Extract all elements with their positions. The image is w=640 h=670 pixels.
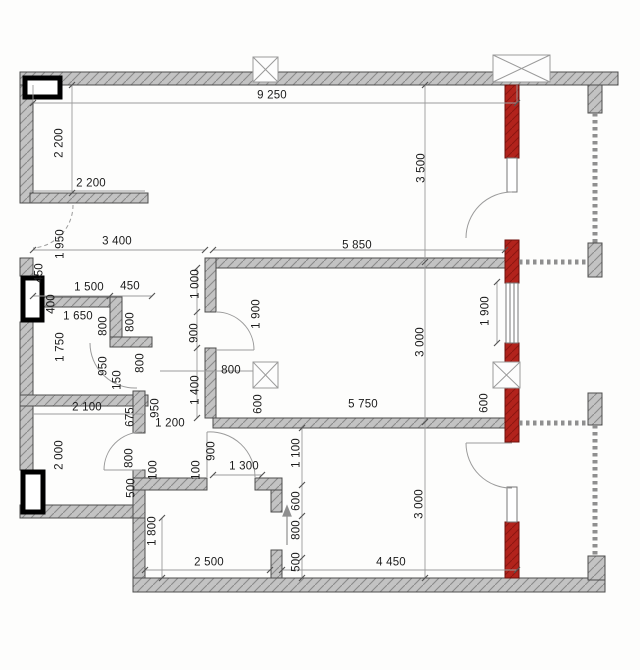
- wall-bottom: [133, 578, 605, 592]
- dim-label-3000-b: 3 000: [414, 489, 426, 519]
- column-right-mid: [588, 243, 602, 277]
- shaft-x-icon-top-right: [493, 55, 550, 82]
- door-arc-balcony-top: [466, 192, 512, 238]
- dim-label-950-a: 950: [98, 356, 110, 376]
- dim-label-800-box: 800: [221, 365, 241, 377]
- riser-wall-3: [505, 343, 519, 362]
- dim-label-800-d: 800: [124, 448, 136, 468]
- dim-label-400: 400: [46, 294, 58, 314]
- wall-br-corner: [588, 556, 605, 580]
- dim-label-1100: 1 100: [291, 438, 303, 468]
- dim-label-900-corr: 900: [206, 441, 218, 461]
- dim-label-9250: 9 250: [257, 90, 287, 102]
- door-arc-dashed-left: [33, 205, 73, 248]
- dim-label-2200-v: 2 200: [54, 128, 66, 158]
- dim-label-4450: 4 450: [376, 557, 406, 569]
- dim-label-450-v: 450: [34, 263, 46, 283]
- dim-label-5750: 5 750: [348, 399, 378, 411]
- wall-corridor-b: [255, 478, 282, 490]
- shaft-x-icon-center: [253, 362, 278, 388]
- window-icon-top-left: [25, 78, 60, 97]
- wall-left-upper: [20, 85, 33, 203]
- dim-label-500-a: 500: [126, 478, 138, 498]
- wall-left-mid-a: [20, 258, 33, 276]
- dim-label-500-b: 500: [291, 552, 303, 572]
- dim-label-2200-h: 2 200: [76, 178, 106, 190]
- dim-label-2000: 2 000: [54, 440, 66, 470]
- dim-label-100-b: 100: [191, 460, 203, 480]
- dim-label-1800: 1 800: [147, 516, 159, 546]
- dim-label-1200: 1 200: [155, 418, 185, 430]
- red-wall-openings: [506, 158, 518, 522]
- wall-room-left-a: [205, 258, 216, 312]
- dim-label-1500: 1 500: [74, 282, 104, 294]
- door-leaf-top: [507, 158, 517, 192]
- dim-label-950-b: 950: [150, 398, 162, 418]
- dim-label-3000-a: 3 000: [415, 327, 427, 357]
- dim-label-800-e: 800: [291, 520, 303, 540]
- window-icon-left-mid: [23, 278, 42, 320]
- glazing-lines: [519, 113, 595, 556]
- door-leaf-bottom: [507, 487, 517, 522]
- dim-label-3400: 3 400: [102, 236, 132, 248]
- dim-label-3500: 3 500: [416, 153, 428, 183]
- riser-wall-4: [505, 388, 519, 442]
- dim-label-1900-win: 1 900: [480, 296, 492, 326]
- column-right-low: [588, 393, 602, 425]
- wall-2200: [30, 193, 148, 203]
- dim-label-1900-door: 1 900: [251, 299, 263, 329]
- dim-label-1650: 1 650: [63, 311, 93, 323]
- window-icon-left-low: [23, 472, 43, 512]
- door-arc-balcony-bottom: [466, 443, 512, 488]
- wall-room-left-b: [205, 348, 216, 418]
- dim-label-600-mid: 600: [253, 394, 265, 414]
- dim-label-800-c: 800: [135, 353, 147, 373]
- dim-label-600-r: 600: [479, 393, 491, 413]
- wall-bath-step: [110, 337, 152, 347]
- floor-plan-drawing: [0, 0, 640, 670]
- dim-label-1400: 1 400: [190, 375, 202, 405]
- dim-label-1950: 1 950: [55, 229, 67, 259]
- dim-label-800-b: 800: [125, 312, 137, 332]
- dim-label-150: 150: [112, 370, 124, 390]
- dim-label-100-a: 100: [148, 460, 160, 480]
- shaft-x-icon-right: [493, 362, 520, 388]
- dim-label-5850: 5 850: [342, 240, 372, 252]
- wall-entry-stub-b: [271, 550, 282, 578]
- dim-label-675: 675: [125, 407, 137, 427]
- column-right-top: [588, 85, 602, 113]
- dim-label-800-a: 800: [98, 316, 110, 336]
- dim-label-600-b: 600: [291, 491, 303, 511]
- door-arc-living: [216, 312, 254, 350]
- dim-label-2100: 2 100: [72, 402, 102, 414]
- floor-plan: 9 250 2 200 2 200 3 500 3 400 5 850 1 95…: [0, 0, 640, 670]
- dim-label-1300: 1 300: [229, 461, 259, 473]
- dim-label-2500: 2 500: [194, 557, 224, 569]
- shaft-x-icon-top-left: [253, 57, 278, 82]
- wall-entry-stub-a: [271, 490, 282, 512]
- window-icon-red-wall: [506, 283, 518, 343]
- riser-wall-2: [505, 240, 519, 283]
- dim-label-900-mid: 900: [189, 323, 201, 343]
- dim-label-450-h: 450: [120, 281, 140, 293]
- wall-room-bottom: [213, 418, 519, 428]
- dim-label-1750: 1 750: [55, 332, 67, 362]
- wall-left-lower: [133, 514, 145, 578]
- wall-room-top: [205, 258, 519, 268]
- dim-label-1000: 1 000: [190, 269, 202, 299]
